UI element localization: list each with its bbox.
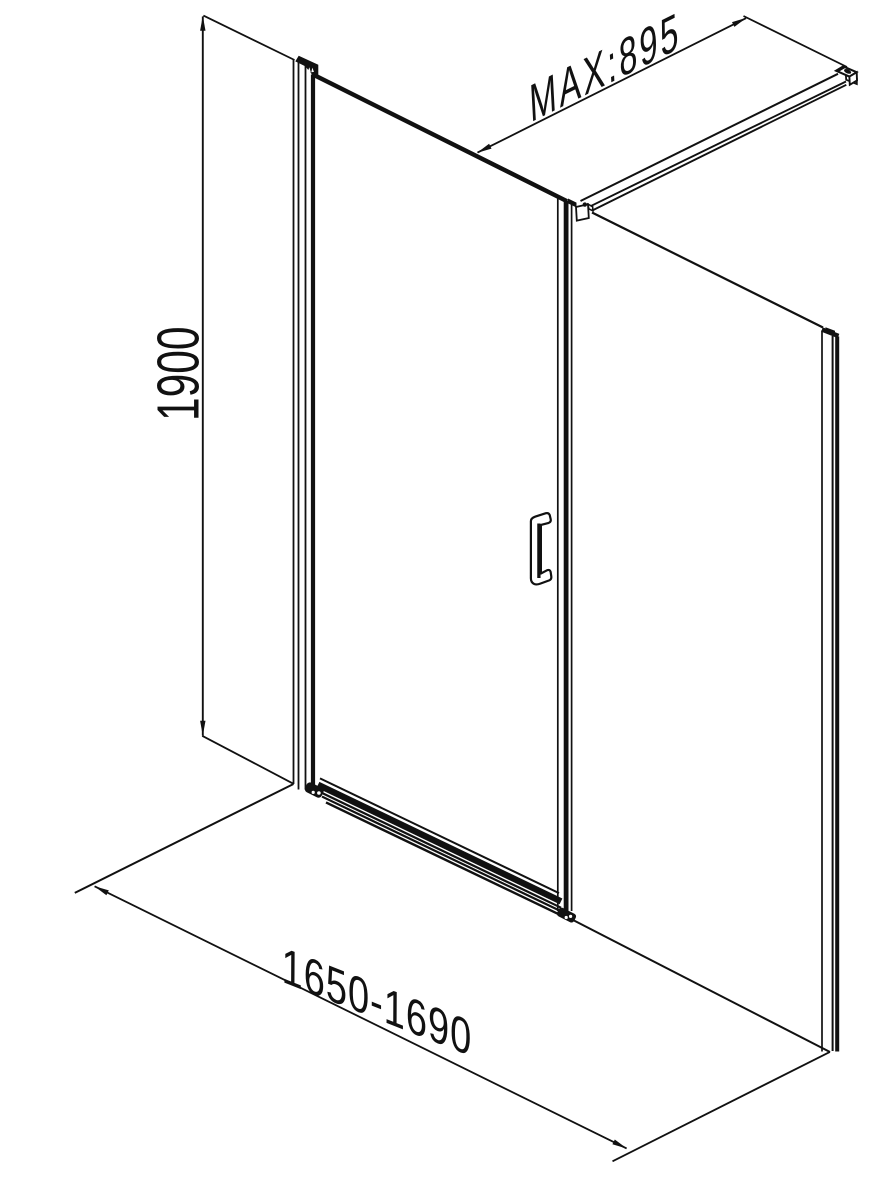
svg-text:1900: 1900 [145,327,212,421]
